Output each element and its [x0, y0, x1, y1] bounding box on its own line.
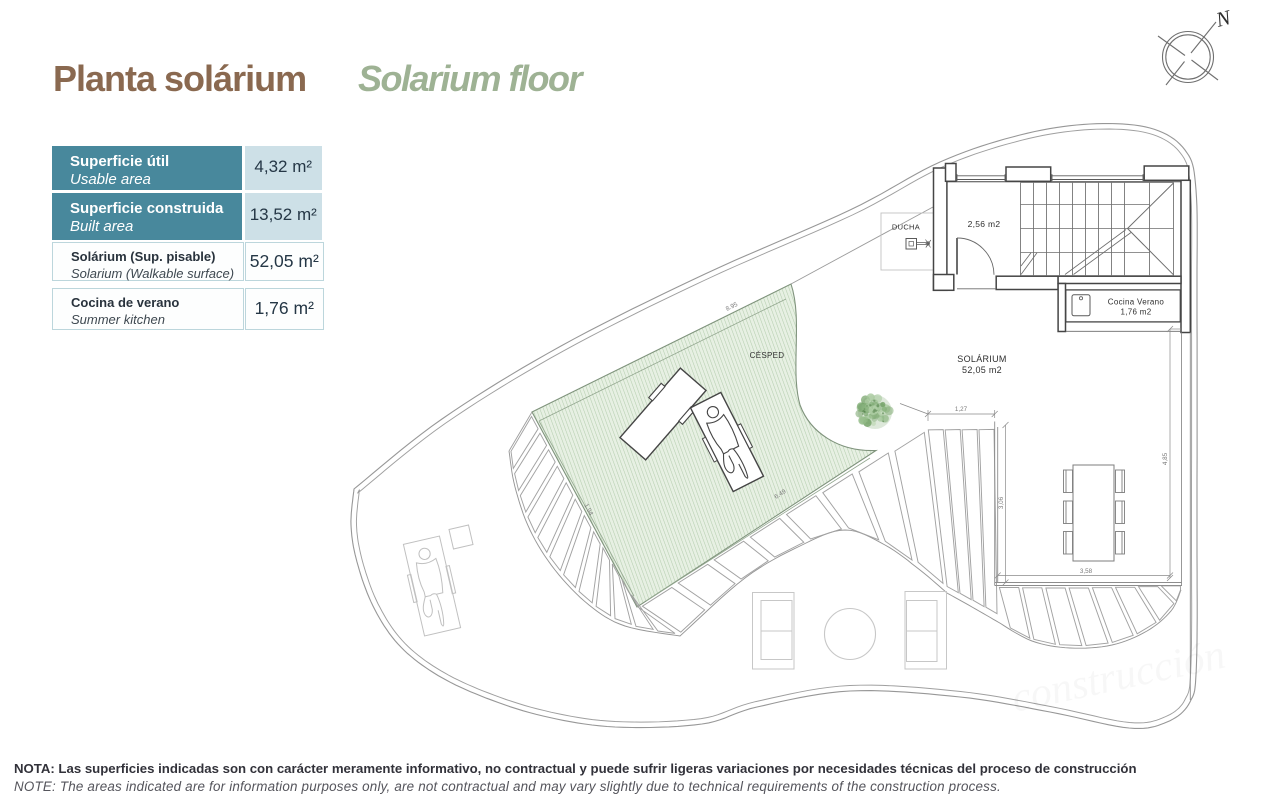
svg-text:DUCHA: DUCHA — [892, 223, 920, 232]
svg-text:3,58: 3,58 — [1080, 568, 1093, 575]
svg-text:1,27: 1,27 — [955, 406, 968, 413]
svg-text:3,06: 3,06 — [998, 496, 1005, 509]
svg-text:2,56 m2: 2,56 m2 — [968, 219, 1001, 229]
svg-text:Cocina Verano: Cocina Verano — [1108, 298, 1165, 307]
svg-text:CÉSPED: CÉSPED — [750, 351, 785, 360]
svg-text:1,76 m2: 1,76 m2 — [1120, 308, 1151, 317]
svg-text:N: N — [1213, 5, 1234, 32]
svg-text:52,05 m2: 52,05 m2 — [962, 365, 1002, 375]
svg-text:4,85: 4,85 — [1162, 452, 1169, 465]
svg-text:construcción: construcción — [1008, 632, 1230, 722]
svg-text:SOLÁRIUM: SOLÁRIUM — [957, 354, 1006, 364]
